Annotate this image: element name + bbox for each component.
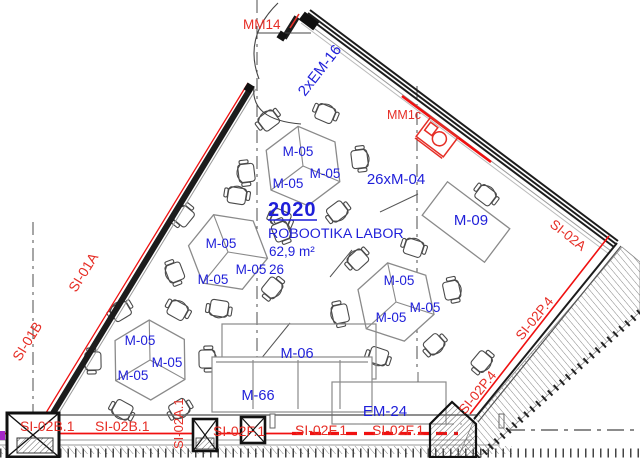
label-chairs-count: 26xM-04 <box>367 171 425 188</box>
label-mm1c: MM1c <box>387 108 421 122</box>
label-si02a1: SI-02A.1 <box>171 398 186 449</box>
room-capacity: 26 <box>269 262 284 277</box>
wall-device-mm1c <box>415 117 458 158</box>
label-m66: M-66 <box>241 388 274 404</box>
label-m05: M-05 <box>206 236 237 251</box>
label-m05: M-05 <box>283 144 314 159</box>
label-m05: M-05 <box>118 368 149 383</box>
room-area: 62,9 m² <box>269 244 315 259</box>
label-m05: M-05 <box>410 300 441 315</box>
label-si02b1-a: SI-02B.1 <box>20 418 75 434</box>
floor-plan-drawing: M-05 M-05 M-05 M-05 M-05 M-05 M-05 M-05 … <box>0 0 640 458</box>
room-name: ROBOOTIKA LABOR <box>268 226 404 242</box>
table-group-3 <box>68 278 232 442</box>
label-si02f1-a: SI-02F.1 <box>213 423 265 439</box>
bench-m06 <box>212 324 376 412</box>
floor-plan: M-05 M-05 M-05 M-05 M-05 M-05 M-05 M-05 … <box>0 0 640 458</box>
label-m06: M-06 <box>280 346 313 362</box>
label-si01a: SI-01A <box>65 249 102 294</box>
label-si02f1-c: SI-02F.1 <box>372 422 424 438</box>
label-m09: M-09 <box>454 212 488 229</box>
magenta-marker <box>0 431 5 440</box>
label-mm14: MM14 <box>243 17 281 32</box>
label-m05: M-05 <box>236 262 267 277</box>
label-2xem16: 2xEM-16 <box>295 42 345 100</box>
label-si02b1-b: SI-02B.1 <box>95 418 150 434</box>
label-si02f1-b: SI-02F.1 <box>295 422 347 438</box>
label-m05: M-05 <box>273 176 304 191</box>
label-m05: M-05 <box>198 272 229 287</box>
label-si02a: SI-02A <box>547 217 589 254</box>
label-si01b: SI-01B <box>9 319 45 364</box>
label-m05: M-05 <box>152 355 183 370</box>
bottom-right-wall <box>458 236 640 458</box>
label-em24: EM-24 <box>363 403 407 420</box>
table-group-4 <box>325 231 467 373</box>
label-m05: M-05 <box>310 166 341 181</box>
label-m05: M-05 <box>125 333 156 348</box>
room-number: 2020 <box>268 199 317 221</box>
label-m05: M-05 <box>376 310 407 325</box>
label-m05: M-05 <box>384 273 415 288</box>
